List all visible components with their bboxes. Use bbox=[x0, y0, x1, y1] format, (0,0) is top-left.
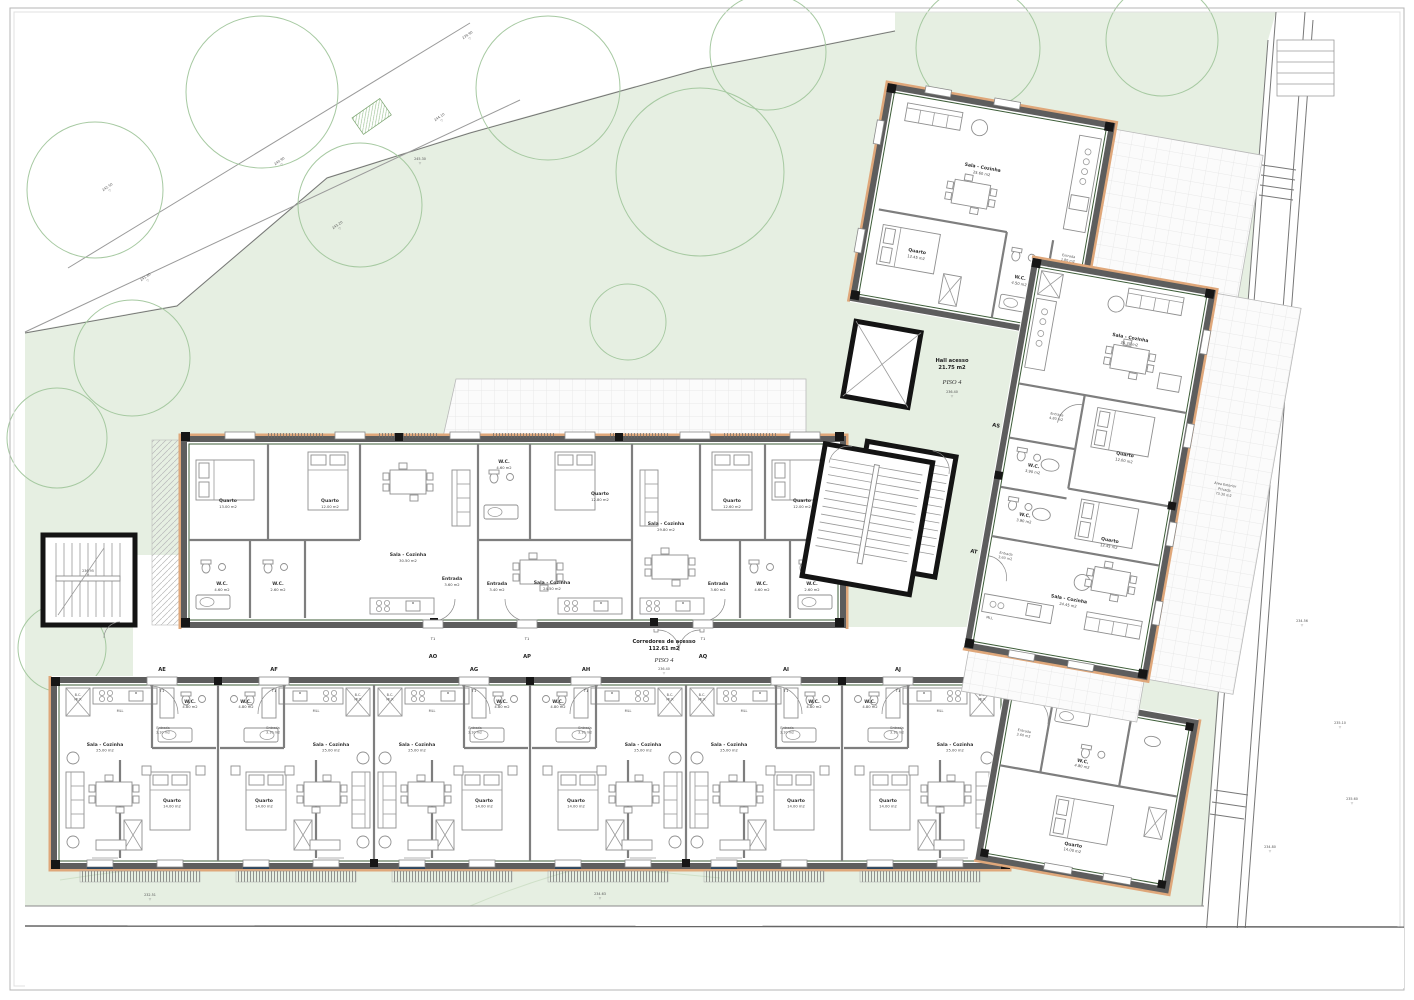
floor-plan-page: 236.95 ▽ bbox=[0, 0, 1414, 1000]
room-label: Sala - Cozinha bbox=[399, 742, 436, 748]
room-area: 3.10 m2 bbox=[890, 731, 904, 735]
room-area: 2.60 m2 bbox=[804, 588, 819, 592]
room-label: MLR bbox=[386, 698, 394, 702]
room-area: 25.00 m2 bbox=[96, 749, 114, 753]
room-label: MLR bbox=[978, 698, 986, 702]
room-area: 25.00 m2 bbox=[322, 749, 340, 753]
room-area: 14.00 m2 bbox=[567, 805, 585, 809]
room-label: MLL bbox=[741, 709, 748, 713]
unit-code: AE bbox=[158, 667, 166, 673]
room-label: Sala - Cozinha bbox=[87, 742, 124, 748]
unit-code: AO bbox=[429, 654, 438, 660]
door-tag: T1 bbox=[524, 637, 529, 641]
room-label: Entrada bbox=[890, 726, 903, 730]
room-area: 13.00 m2 bbox=[219, 505, 237, 509]
hall-name: Hall acesso bbox=[935, 358, 968, 364]
room-area: 4.80 m2 bbox=[494, 705, 509, 709]
room-area: 12.80 m2 bbox=[591, 498, 609, 502]
door-tag: T1 bbox=[700, 637, 705, 641]
room-area: 14.00 m2 bbox=[475, 805, 493, 809]
room-label: Entrada bbox=[708, 581, 728, 587]
room-area: 4.80 m2 bbox=[806, 705, 821, 709]
room-label: Quarto bbox=[787, 798, 805, 804]
room-label: W.C. bbox=[216, 581, 228, 587]
door-tag: T1 bbox=[895, 689, 900, 693]
room-label: B.C. bbox=[75, 693, 82, 697]
room-label: B.C. bbox=[387, 693, 394, 697]
room-label: W.C. bbox=[498, 459, 510, 465]
room-label: Quarto bbox=[475, 798, 493, 804]
room-label: Quarto bbox=[567, 798, 585, 804]
room-area: 25.00 m2 bbox=[946, 749, 964, 753]
unit-code: AQ bbox=[699, 654, 708, 660]
room-label: B.C. bbox=[699, 693, 706, 697]
building-middle: Quarto 13.00 m2 Quarto 12.00 m2 Sala - C… bbox=[180, 432, 847, 629]
room-area: 25.00 m2 bbox=[720, 749, 738, 753]
stair-core-left: 236.95 ▽ bbox=[43, 535, 135, 638]
room-area: 3.60 m2 bbox=[444, 583, 459, 587]
door-tag: T1 bbox=[159, 689, 164, 693]
room-area: 14.00 m2 bbox=[787, 805, 805, 809]
room-label: Quarto bbox=[723, 498, 741, 504]
stepped-path bbox=[1277, 40, 1334, 96]
unit-code: AH bbox=[582, 667, 590, 673]
room-label: MLR bbox=[666, 698, 674, 702]
room-area: 4.60 m2 bbox=[214, 588, 229, 592]
room-label: Entrada bbox=[156, 726, 169, 730]
room-area: 3.10 m2 bbox=[266, 731, 280, 735]
room-area: 3.10 m2 bbox=[156, 731, 170, 735]
floor-plan-canvas: 236.95 ▽ bbox=[0, 0, 1414, 1000]
unit-code: AP bbox=[523, 654, 531, 660]
room-label: Entrada bbox=[780, 726, 793, 730]
room-label: Quarto bbox=[321, 498, 339, 504]
room-label: W.C. bbox=[272, 581, 284, 587]
room-area: 25.00 m2 bbox=[634, 749, 652, 753]
corridor-floor: PISO 4 bbox=[654, 657, 675, 664]
room-label: MLL bbox=[117, 709, 124, 713]
door-tag: T1 bbox=[471, 689, 476, 693]
room-area: 3.60 m2 bbox=[710, 588, 725, 592]
room-area: 14.00 m2 bbox=[255, 805, 273, 809]
room-area: 4.80 m2 bbox=[238, 705, 253, 709]
room-label: Sala - Cozinha bbox=[534, 580, 571, 586]
balcony-strip-left bbox=[152, 440, 180, 625]
room-area: 4.80 m2 bbox=[182, 705, 197, 709]
room-area: 12.00 m2 bbox=[321, 505, 339, 509]
unit-code: AG bbox=[470, 667, 478, 673]
room-area: 3.10 m2 bbox=[780, 731, 794, 735]
room-label: Sala - Cozinha bbox=[313, 742, 350, 748]
room-label: B.C. bbox=[667, 693, 674, 697]
building-bottom-end-unit: Entrada 3.60 m2 W.C. 4.80 m2 Quarto 14.0… bbox=[974, 685, 1200, 895]
room-label: Entrada bbox=[442, 576, 462, 582]
room-label: MLR bbox=[354, 698, 362, 702]
room-label: Sala - Cozinha bbox=[937, 742, 974, 748]
room-label: W.C. bbox=[756, 581, 768, 587]
room-label: Quarto bbox=[793, 498, 811, 504]
elevator-core bbox=[843, 321, 921, 407]
room-label: Quarto bbox=[255, 798, 273, 804]
room-area: 24.50 m2 bbox=[543, 587, 561, 591]
unit-code: AI bbox=[783, 667, 789, 673]
room-label: Quarto bbox=[163, 798, 181, 804]
room-label: Sala - Cozinha bbox=[648, 521, 685, 527]
corridor-area: 112.61 m2 bbox=[649, 646, 680, 652]
room-label: Entrada bbox=[578, 726, 591, 730]
room-label: W.C. bbox=[806, 581, 818, 587]
corridor-name: Corredores de acesso bbox=[632, 639, 696, 645]
room-area: 4.60 m2 bbox=[754, 588, 769, 592]
room-area: 3.10 m2 bbox=[578, 731, 592, 735]
hall-area: 21.75 m2 bbox=[938, 365, 966, 371]
stair-core-top-complex bbox=[802, 442, 933, 595]
room-label: Quarto bbox=[591, 491, 609, 497]
room-label: MLR bbox=[74, 698, 82, 702]
unit-code: AF bbox=[270, 667, 278, 673]
room-label: Sala - Cozinha bbox=[390, 552, 427, 558]
room-label: B.C. bbox=[355, 693, 362, 697]
room-area: 4.80 m2 bbox=[550, 705, 565, 709]
room-area: 3.10 m2 bbox=[468, 731, 482, 735]
room-label: MLL bbox=[937, 709, 944, 713]
room-area: 12.60 m2 bbox=[723, 505, 741, 509]
room-label: MLR bbox=[698, 698, 706, 702]
room-area: 14.00 m2 bbox=[163, 805, 181, 809]
room-label: Quarto bbox=[219, 498, 237, 504]
unit-code: AJ bbox=[895, 667, 901, 673]
door-tag: T1 bbox=[783, 689, 788, 693]
door-tag: T1 bbox=[430, 637, 435, 641]
room-area: 2.60 m2 bbox=[270, 588, 285, 592]
room-label: Entrada bbox=[266, 726, 279, 730]
room-area: 25.00 m2 bbox=[408, 749, 426, 753]
room-area: 3.40 m2 bbox=[489, 588, 504, 592]
room-area: 30.50 m2 bbox=[399, 559, 417, 563]
room-area: 4.60 m2 bbox=[496, 466, 511, 470]
room-label: MLL bbox=[313, 709, 320, 713]
room-label: Entrada bbox=[468, 726, 481, 730]
room-area: 14.00 m2 bbox=[879, 805, 897, 809]
room-area: 29.80 m2 bbox=[657, 528, 675, 532]
room-area: 4.80 m2 bbox=[862, 705, 877, 709]
room-label: Sala - Cozinha bbox=[625, 742, 662, 748]
bottom-path bbox=[25, 906, 1404, 988]
room-label: Sala - Cozinha bbox=[711, 742, 748, 748]
door-tag: T1 bbox=[271, 689, 276, 693]
room-area: 12.00 m2 bbox=[793, 505, 811, 509]
central-terrace bbox=[443, 379, 806, 437]
room-label: Entrada bbox=[487, 581, 507, 587]
room-label: Quarto bbox=[879, 798, 897, 804]
room-label: MLL bbox=[429, 709, 436, 713]
hall-floor: PISO 4 bbox=[942, 379, 963, 386]
door-tag: T1 bbox=[583, 689, 588, 693]
room-label: MLL bbox=[625, 709, 632, 713]
